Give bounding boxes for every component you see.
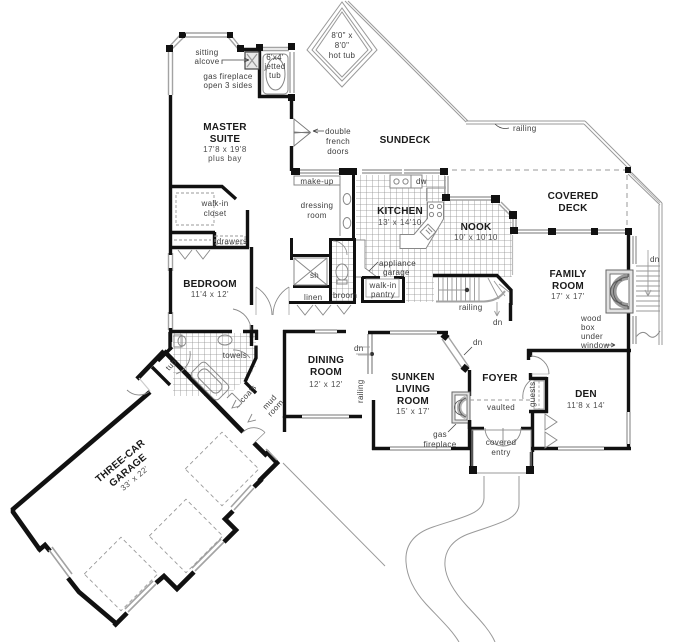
- svg-text:pantry: pantry: [371, 290, 395, 299]
- svg-text:6'x4': 6'x4': [266, 53, 284, 62]
- svg-text:tub: tub: [269, 71, 281, 80]
- svg-text:drawers: drawers: [217, 237, 248, 246]
- svg-text:sh: sh: [310, 271, 319, 280]
- svg-text:KITCHEN: KITCHEN: [377, 206, 423, 217]
- svg-text:broom: broom: [333, 291, 357, 300]
- svg-text:11'4 x 12': 11'4 x 12': [191, 290, 229, 299]
- svg-text:room: room: [307, 211, 326, 220]
- svg-text:make-up: make-up: [300, 177, 333, 186]
- svg-text:doors: doors: [327, 147, 349, 156]
- svg-text:dn: dn: [650, 255, 660, 264]
- svg-text:open 3 sides: open 3 sides: [204, 81, 253, 90]
- svg-text:sitting: sitting: [196, 48, 219, 57]
- svg-text:window: window: [580, 341, 609, 350]
- svg-text:towels: towels: [223, 351, 247, 360]
- svg-text:SUITE: SUITE: [210, 134, 241, 145]
- svg-text:walk-in: walk-in: [369, 281, 397, 290]
- svg-text:13' x 14'10: 13' x 14'10: [378, 218, 422, 227]
- svg-text:dw: dw: [416, 177, 427, 186]
- svg-text:DECK: DECK: [558, 203, 588, 214]
- svg-text:gas fireplace: gas fireplace: [203, 72, 253, 81]
- svg-text:railing: railing: [459, 303, 482, 312]
- svg-text:10' x 10'10: 10' x 10'10: [454, 233, 498, 242]
- svg-text:dn: dn: [473, 338, 483, 347]
- svg-text:box: box: [581, 323, 595, 332]
- svg-text:ROOM: ROOM: [310, 367, 342, 378]
- svg-text:hot tub: hot tub: [329, 51, 356, 60]
- svg-text:jetted: jetted: [263, 62, 285, 71]
- svg-text:railing: railing: [356, 380, 365, 403]
- svg-text:appliance: appliance: [379, 259, 416, 268]
- svg-text:guests: guests: [528, 382, 537, 407]
- svg-text:SUNKEN: SUNKEN: [391, 372, 434, 383]
- svg-text:COVERED: COVERED: [548, 191, 599, 202]
- svg-text:8'0": 8'0": [335, 41, 349, 50]
- svg-text:8'0" x: 8'0" x: [331, 31, 352, 40]
- svg-text:covered: covered: [486, 438, 517, 447]
- svg-text:alcove: alcove: [195, 57, 220, 66]
- svg-text:double: double: [325, 127, 351, 136]
- svg-text:DINING: DINING: [308, 355, 344, 366]
- svg-text:MASTER: MASTER: [203, 122, 247, 133]
- svg-text:ROOM: ROOM: [397, 396, 429, 407]
- svg-text:SUNDECK: SUNDECK: [380, 135, 431, 146]
- svg-text:LIVING: LIVING: [396, 384, 431, 395]
- svg-text:17' x 17': 17' x 17': [551, 292, 585, 301]
- svg-text:vaulted: vaulted: [487, 403, 515, 412]
- svg-text:12' x 12': 12' x 12': [309, 380, 343, 389]
- svg-text:fireplace: fireplace: [424, 440, 457, 449]
- svg-text:dn: dn: [493, 318, 503, 327]
- svg-text:BEDROOM: BEDROOM: [183, 279, 237, 290]
- svg-text:wood: wood: [580, 314, 601, 323]
- svg-text:15' x 17': 15' x 17': [396, 407, 430, 416]
- svg-text:17'8 x 19'8: 17'8 x 19'8: [203, 145, 247, 154]
- svg-text:11'8 x 14': 11'8 x 14': [567, 401, 605, 410]
- svg-text:french: french: [326, 137, 350, 146]
- svg-text:plus bay: plus bay: [208, 154, 242, 163]
- svg-text:gas: gas: [433, 430, 447, 439]
- svg-text:walk-in: walk-in: [201, 199, 229, 208]
- svg-text:closet: closet: [204, 209, 227, 218]
- svg-text:railing: railing: [513, 124, 536, 133]
- svg-text:linen: linen: [304, 293, 322, 302]
- svg-text:entry: entry: [491, 448, 510, 457]
- svg-text:ROOM: ROOM: [552, 281, 584, 292]
- svg-text:FOYER: FOYER: [482, 373, 518, 384]
- svg-text:DEN: DEN: [575, 389, 597, 400]
- svg-text:dn: dn: [354, 344, 364, 353]
- svg-text:garage: garage: [383, 268, 410, 277]
- svg-text:NOOK: NOOK: [461, 222, 492, 233]
- svg-text:FAMILY: FAMILY: [550, 269, 587, 280]
- svg-text:dressing: dressing: [301, 201, 334, 210]
- svg-text:under: under: [581, 332, 603, 341]
